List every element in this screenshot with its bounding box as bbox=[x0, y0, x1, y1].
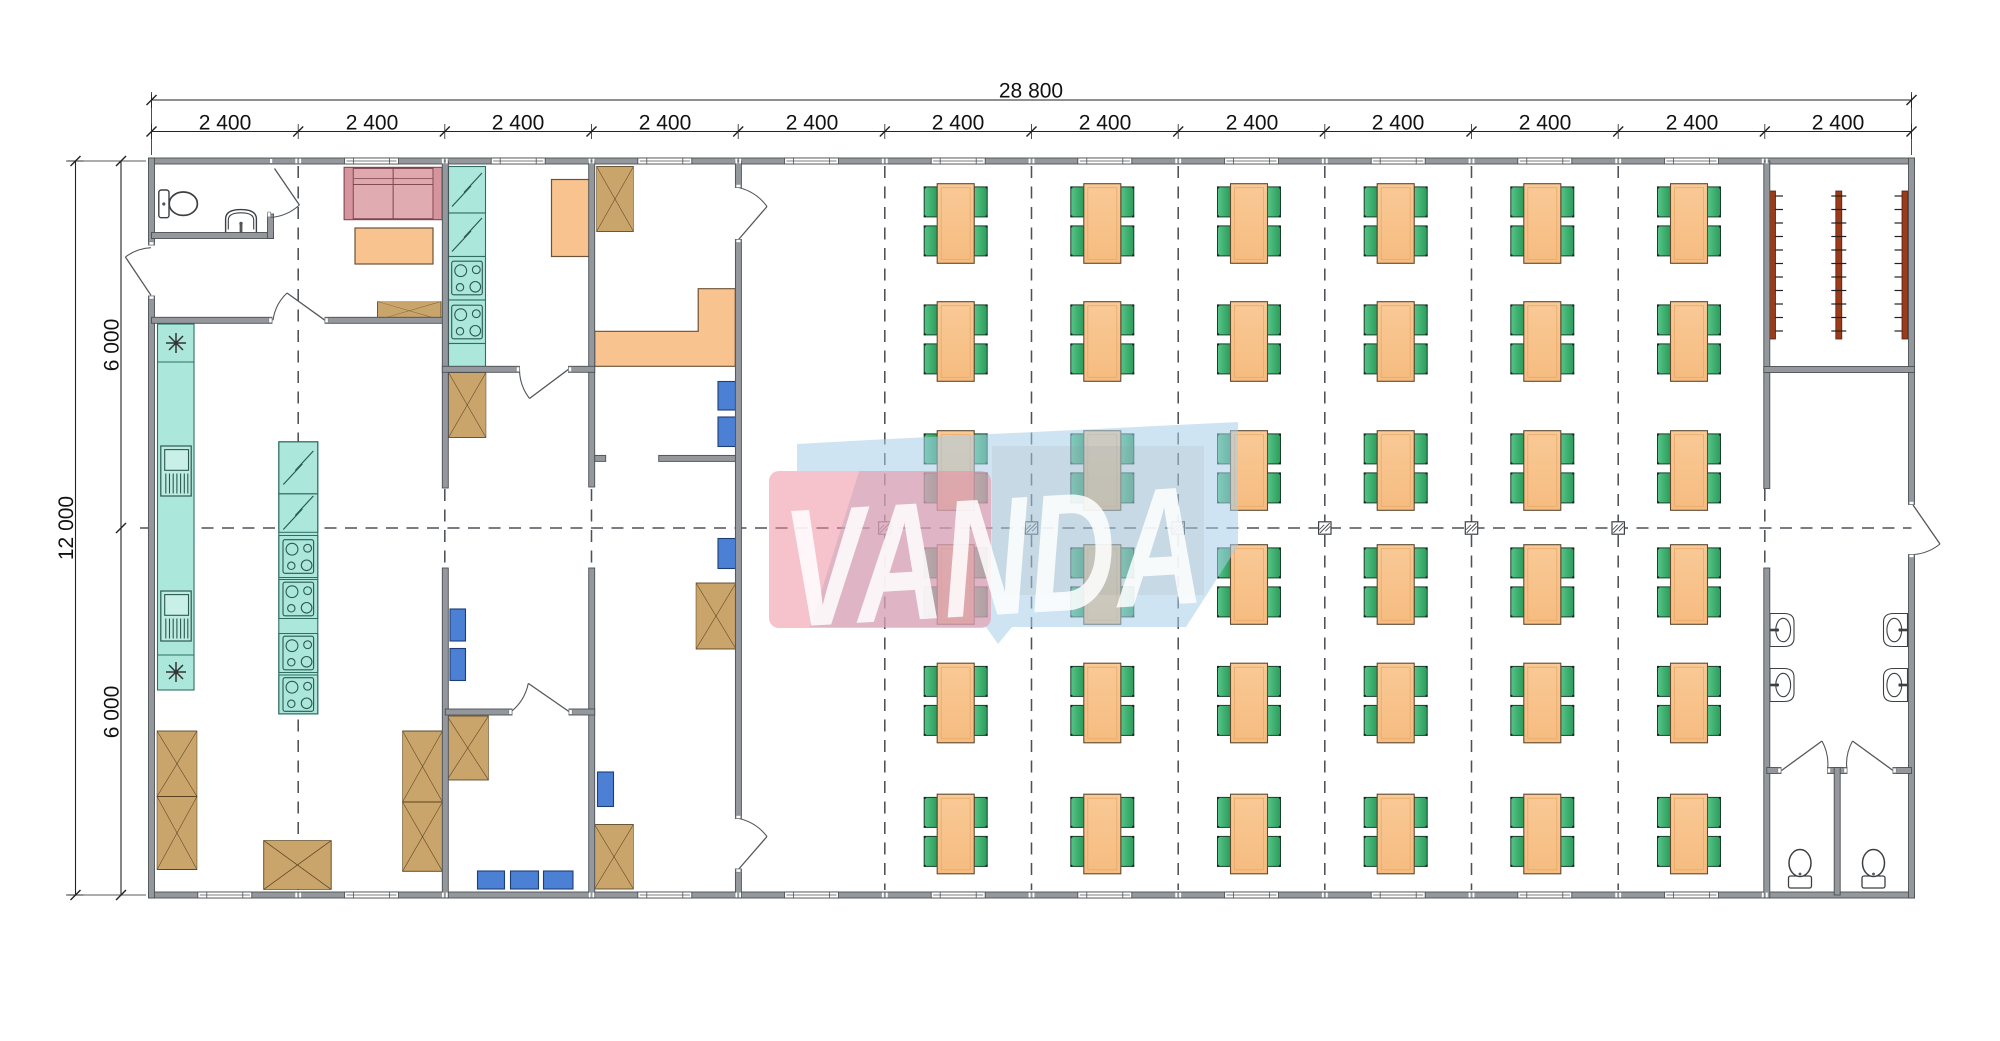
svg-text:2 400: 2 400 bbox=[1226, 112, 1279, 135]
svg-text:2 400: 2 400 bbox=[639, 112, 692, 135]
svg-text:2 400: 2 400 bbox=[786, 112, 839, 135]
svg-text:VANDA: VANDA bbox=[779, 450, 1207, 662]
svg-text:2 400: 2 400 bbox=[492, 112, 545, 135]
svg-text:28 800: 28 800 bbox=[999, 80, 1063, 103]
svg-text:2 400: 2 400 bbox=[932, 112, 985, 135]
svg-text:2 400: 2 400 bbox=[1812, 112, 1865, 135]
svg-text:2 400: 2 400 bbox=[1666, 112, 1719, 135]
svg-text:2 400: 2 400 bbox=[1519, 112, 1572, 135]
svg-text:6 000: 6 000 bbox=[101, 686, 124, 739]
svg-text:12 000: 12 000 bbox=[55, 496, 78, 560]
svg-text:2 400: 2 400 bbox=[346, 112, 399, 135]
svg-text:6 000: 6 000 bbox=[101, 319, 124, 372]
svg-text:2 400: 2 400 bbox=[1079, 112, 1132, 135]
svg-text:2 400: 2 400 bbox=[199, 112, 252, 135]
svg-text:2 400: 2 400 bbox=[1372, 112, 1425, 135]
